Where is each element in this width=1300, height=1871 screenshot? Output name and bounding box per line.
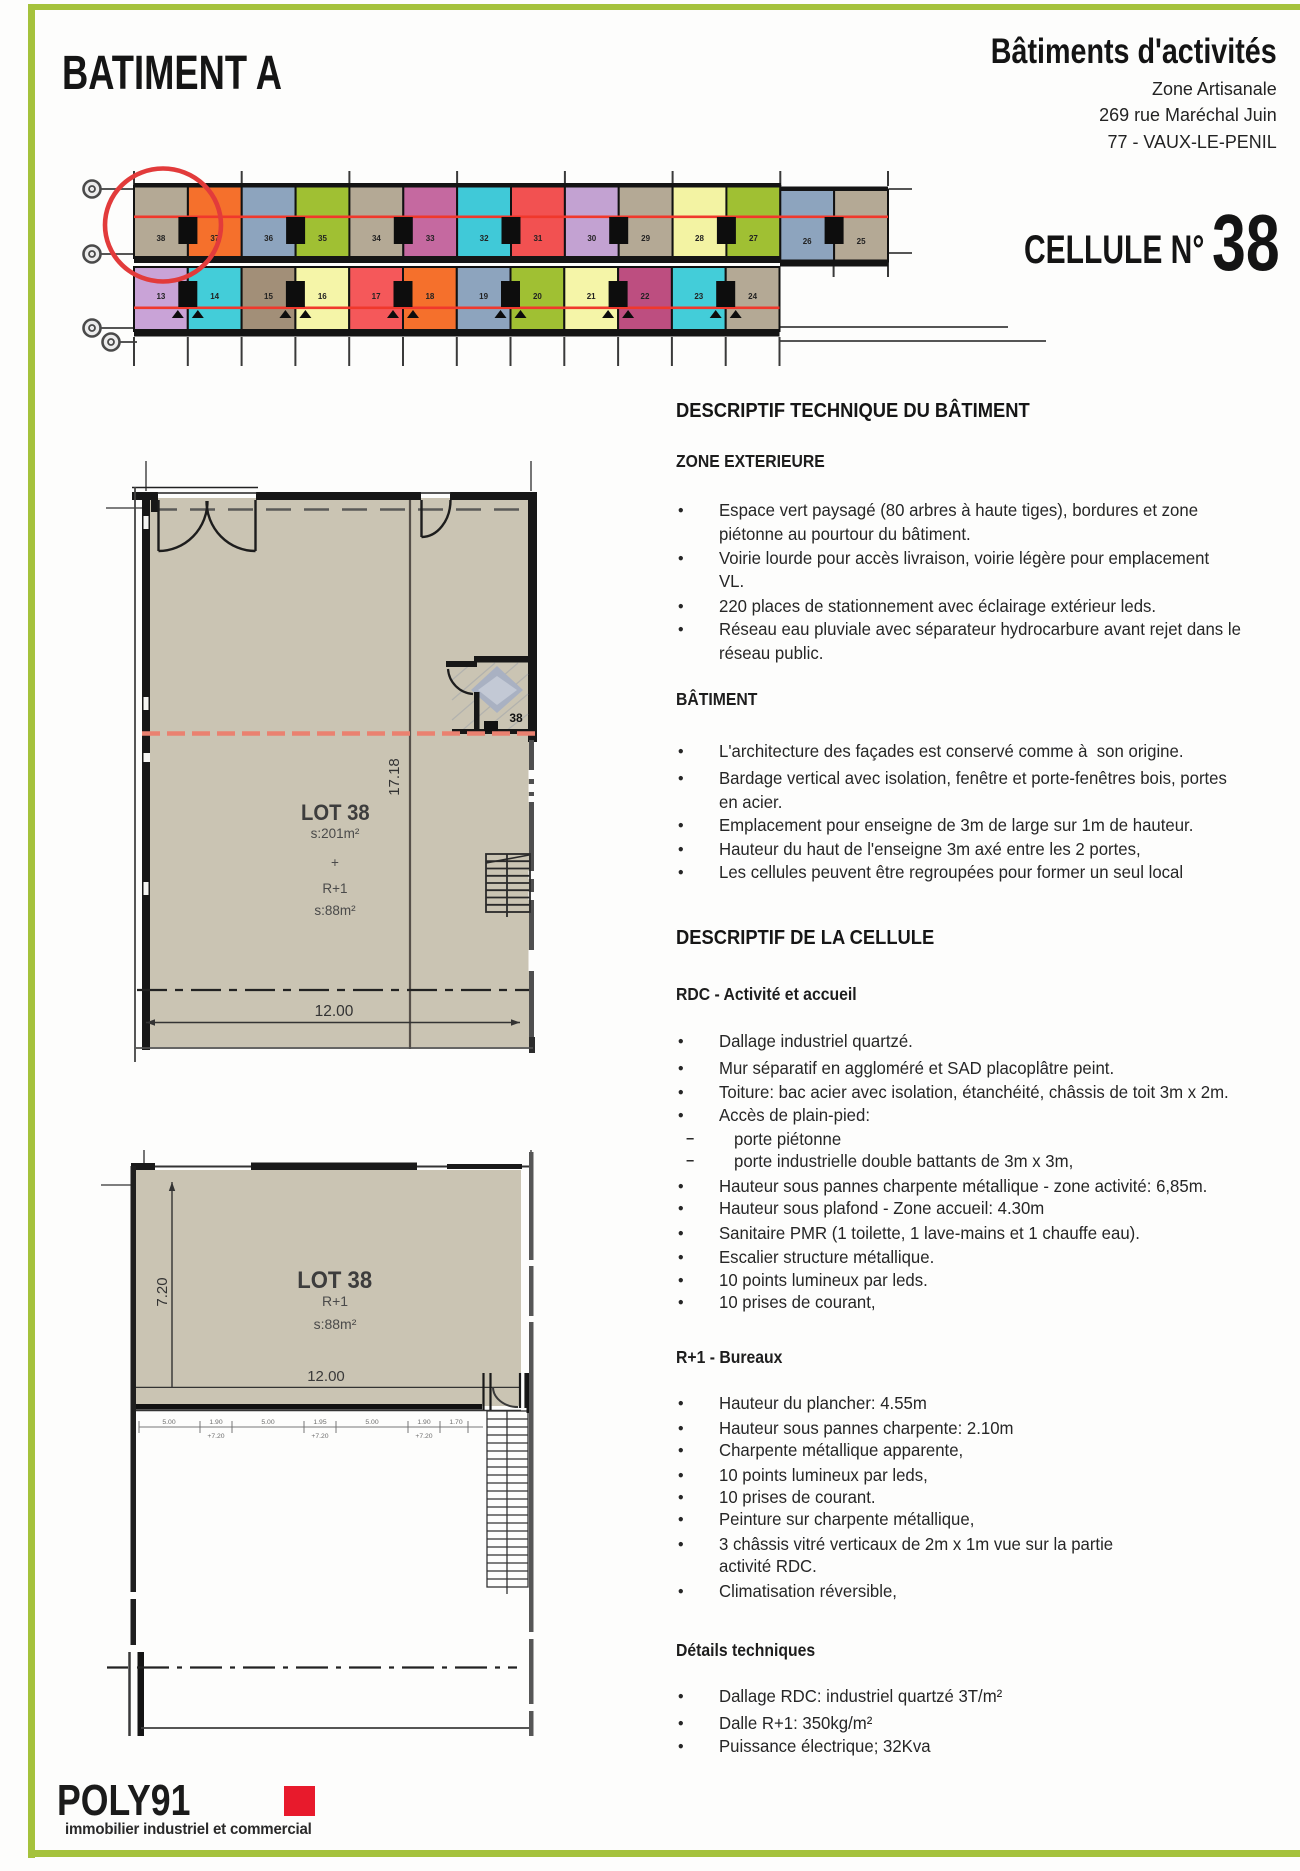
svg-text:31: 31 xyxy=(533,234,542,243)
svg-text:15: 15 xyxy=(264,292,273,301)
svg-text:27: 27 xyxy=(749,234,758,243)
svg-text:1.90: 1.90 xyxy=(209,1419,222,1426)
svg-text:26: 26 xyxy=(803,237,812,246)
svg-text:30: 30 xyxy=(587,234,596,243)
svg-text:13: 13 xyxy=(156,292,165,301)
svg-text:1.95: 1.95 xyxy=(313,1419,326,1426)
svg-text:25: 25 xyxy=(857,237,866,246)
svg-text:23: 23 xyxy=(694,292,703,301)
svg-text:24: 24 xyxy=(748,292,757,301)
svg-text:14: 14 xyxy=(210,292,219,301)
svg-text:+7.20: +7.20 xyxy=(415,1433,432,1440)
svg-text:29: 29 xyxy=(641,234,650,243)
svg-text:35: 35 xyxy=(318,234,327,243)
svg-text:12.00: 12.00 xyxy=(315,1003,354,1020)
svg-text:22: 22 xyxy=(641,292,650,301)
svg-text:38: 38 xyxy=(509,711,523,725)
svg-text:5.00: 5.00 xyxy=(365,1419,378,1426)
svg-text:21: 21 xyxy=(587,292,596,301)
svg-text:7.20: 7.20 xyxy=(154,1277,171,1306)
svg-text:1.70: 1.70 xyxy=(449,1419,462,1426)
svg-text:5.00: 5.00 xyxy=(261,1419,274,1426)
svg-text:+7.20: +7.20 xyxy=(207,1433,224,1440)
svg-text:1.90: 1.90 xyxy=(417,1419,430,1426)
svg-text:19: 19 xyxy=(479,292,488,301)
svg-text:28: 28 xyxy=(695,234,704,243)
svg-text:17.18: 17.18 xyxy=(386,758,403,796)
svg-text:5.00: 5.00 xyxy=(162,1419,175,1426)
svg-text:33: 33 xyxy=(426,234,435,243)
svg-text:+7.20: +7.20 xyxy=(311,1433,328,1440)
svg-text:16: 16 xyxy=(318,292,327,301)
svg-text:36: 36 xyxy=(264,234,273,243)
svg-text:32: 32 xyxy=(480,234,489,243)
svg-text:18: 18 xyxy=(425,292,434,301)
svg-text:20: 20 xyxy=(533,292,542,301)
svg-text:17: 17 xyxy=(372,292,381,301)
svg-text:34: 34 xyxy=(372,234,381,243)
svg-text:38: 38 xyxy=(156,234,165,243)
